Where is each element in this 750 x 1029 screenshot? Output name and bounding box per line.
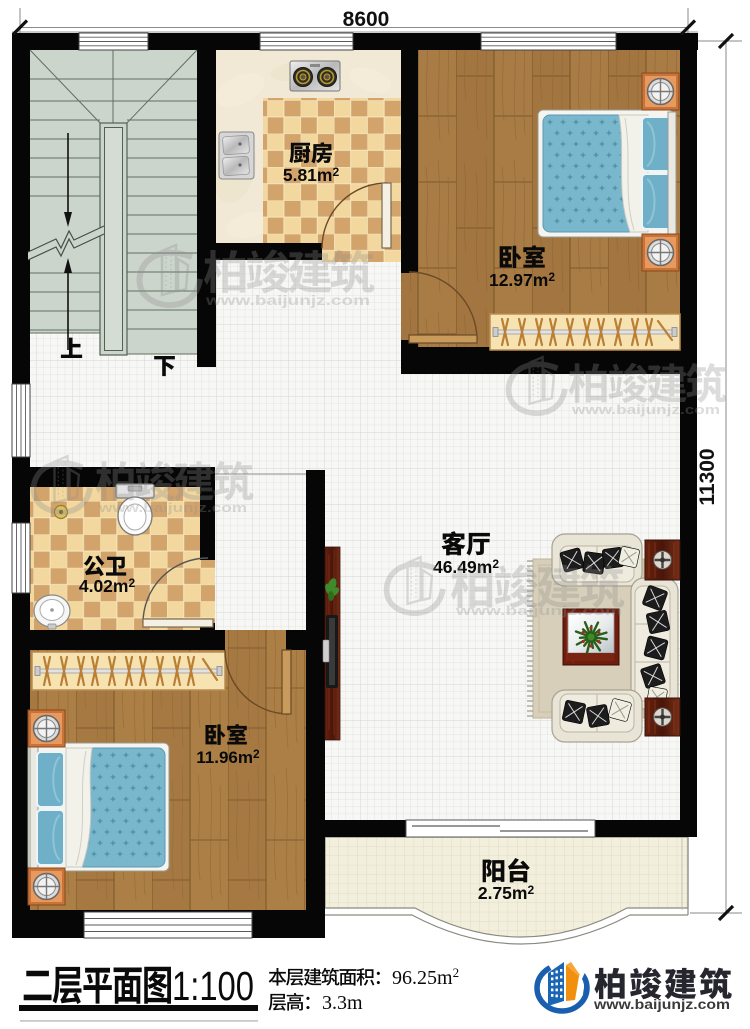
svg-text:11.96m2: 11.96m2: [196, 747, 260, 767]
svg-text:www.baijunjz.com: www.baijunjz.com: [593, 997, 730, 1012]
svg-text:www.baijunjz.com: www.baijunjz.com: [205, 293, 370, 308]
svg-text:3.3m: 3.3m: [322, 992, 363, 1014]
svg-text:11300: 11300: [696, 448, 719, 505]
svg-text:4.02m2: 4.02m2: [79, 576, 136, 596]
svg-text:1:100: 1:100: [172, 963, 254, 1009]
svg-text:www.baijunjz.com: www.baijunjz.com: [98, 501, 247, 515]
svg-text:96.25m2: 96.25m2: [392, 965, 459, 989]
svg-text:8600: 8600: [343, 8, 390, 31]
svg-text:12.97m2: 12.97m2: [489, 270, 555, 290]
svg-text:5.81m2: 5.81m2: [283, 165, 340, 185]
svg-text:www.baijunjz.com: www.baijunjz.com: [571, 403, 720, 417]
svg-text:www.baijunjz.com: www.baijunjz.com: [454, 604, 622, 618]
svg-text:2.75m2: 2.75m2: [478, 883, 535, 903]
